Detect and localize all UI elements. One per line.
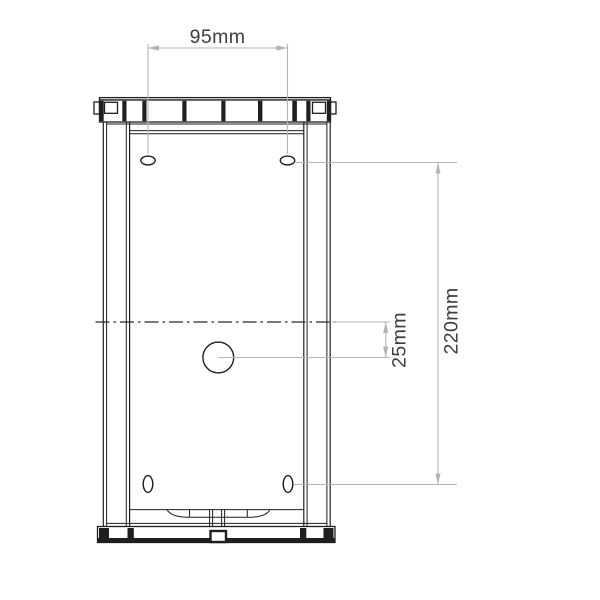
arrow-up-icon <box>435 163 440 174</box>
technical-drawing-canvas: 95mm 220mm 25mm <box>0 0 600 600</box>
arrow-left-icon <box>148 45 159 50</box>
top-cap-right-ear <box>331 102 337 114</box>
bottom-center-stem <box>210 510 225 527</box>
bottom-arc-tray <box>167 510 270 518</box>
bottom-cap <box>98 527 336 543</box>
mounting-hole-top-right <box>280 156 294 165</box>
arrow-down-icon <box>435 474 440 485</box>
mounting-hole-bottom-left <box>143 476 153 493</box>
bottom-cap-tab <box>211 531 227 542</box>
fixture-technical-drawing: 95mm 220mm 25mm <box>0 0 600 600</box>
mounting-hole-top-left <box>141 156 155 165</box>
dimension-label-95mm: 95mm <box>190 26 246 48</box>
dimension-hole-spacing-width: 95mm <box>148 26 288 154</box>
top-cap-left-inset <box>105 102 118 113</box>
mounting-hole-bottom-right <box>283 476 293 493</box>
bottom-tray-detail <box>167 510 270 527</box>
arrow-right-icon <box>277 45 288 50</box>
dimension-centre-offset: 25mm <box>218 312 410 368</box>
left-rail <box>103 122 129 527</box>
dimension-label-220mm: 220mm <box>441 287 463 354</box>
dimension-label-25mm: 25mm <box>389 312 411 368</box>
right-rail <box>304 122 330 527</box>
top-cap <box>94 98 336 122</box>
top-cap-left-ear <box>94 102 100 114</box>
top-cap-right-inset <box>313 102 326 113</box>
dimension-hole-spacing-height: 220mm <box>294 163 463 485</box>
body-panel <box>107 124 327 523</box>
